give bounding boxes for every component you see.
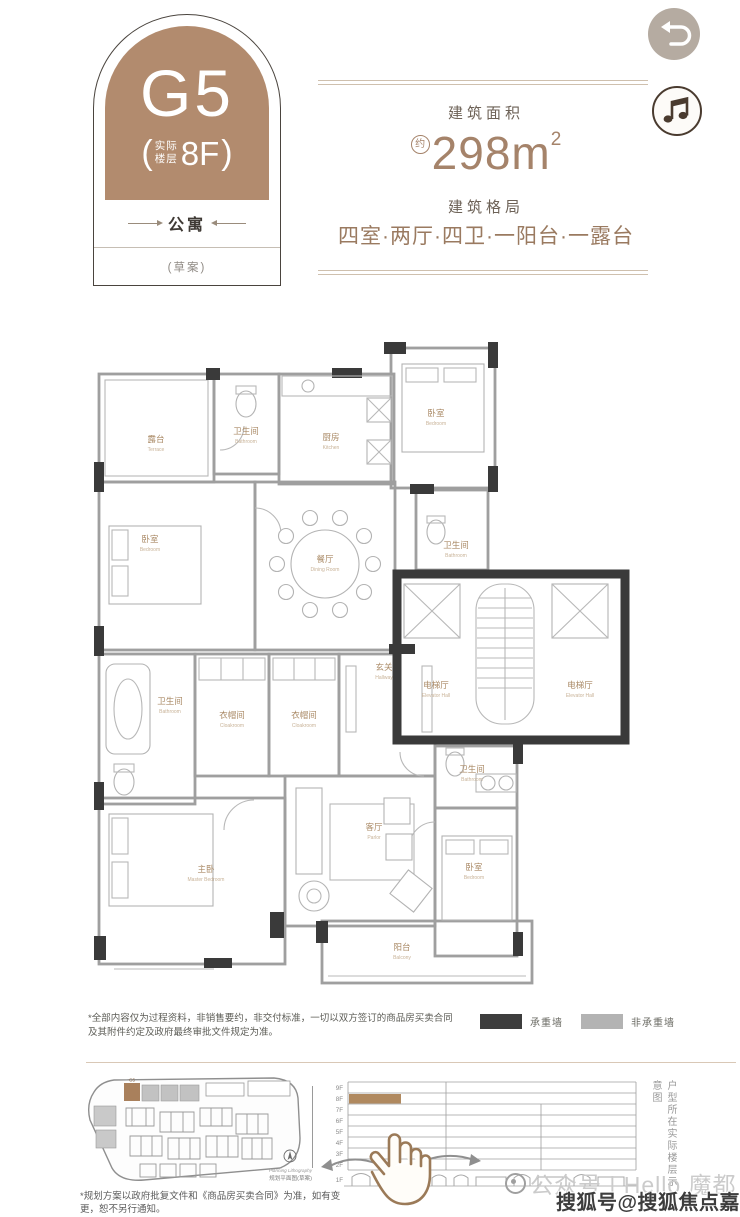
label-elevator-hall-right: 电梯厅 [567,680,593,690]
label-bath-left: 卫生间 [157,696,183,706]
svg-text:Elevator Hall: Elevator Hall [566,693,594,699]
sohu-watermark: 搜狐号@搜狐焦点嘉定站 [556,1186,740,1215]
svg-text:Parlor: Parlor [367,835,381,841]
unit-floor-row: ( 实际 楼层 8F ) [141,136,232,170]
label-elevator-hall-left: 电梯厅 [423,680,449,690]
floorplan-page: G5 ( 实际 楼层 8F ) 公寓 (草案) 建筑面积 约298m2 建筑格局… [0,0,740,1217]
draft-note: (草案) [94,259,280,275]
unit-type: 公寓 [168,211,206,235]
label-hallway: 玄关 [375,662,393,672]
floor-bracket-open: ( [141,136,152,170]
room-terrace [99,374,214,482]
unit-type-row: 公寓 [94,211,280,235]
bottom-divider [86,1062,736,1063]
svg-text:Dining Room: Dining Room [311,567,340,573]
room-balcony [322,921,532,983]
svg-text:Bathroom: Bathroom [235,439,257,445]
pointing-hand-icon [371,1135,430,1205]
swipe-gesture-hint [318,1128,508,1217]
label-cloak-b: 衣帽间 [291,710,317,720]
svg-text:Master Bedroom: Master Bedroom [188,877,225,883]
room-bath-top [214,374,279,474]
highlighted-building-g5 [124,1083,140,1101]
unit-name: G5 [140,60,234,126]
floorplan-drawing: 露台 Terrace 卫生间 Bathroom 厨房 Kitchen 卧室 Be… [84,336,662,1004]
non-load-bearing-label: 非承重墙 [631,1014,675,1029]
svg-text:Bedroom: Bedroom [464,875,484,881]
svg-text:Bathroom: Bathroom [159,709,181,715]
label-master: 主卧 [197,864,215,874]
disclaimer-text: *全部内容仅为过程资料，非销售要约，非交付标准，一切以双方签订的商品房买卖合同及… [88,1012,454,1041]
svg-text:6F: 6F [336,1118,343,1125]
load-bearing-label: 承重墙 [530,1014,563,1029]
bathtub [106,664,150,754]
svg-text:Bathroom: Bathroom [461,777,483,783]
site-plan-caption: 规划平面图(草案) [269,1174,312,1182]
compass-label-en: Planning Lithography [269,1168,313,1173]
swipe-arrow-right [469,1154,481,1166]
svg-text:Cloakroom: Cloakroom [220,723,244,729]
svg-text:Bathroom: Bathroom [445,553,467,559]
label-balcony: 阳台 [393,942,410,952]
label-bedroom-tr: 卧室 [427,408,445,418]
label-terrace: 露台 [147,434,164,444]
label-parlor: 客厅 [365,822,383,832]
label-bath-top: 卫生间 [233,426,259,436]
layout-label: 建筑格局 [318,196,654,217]
svg-text:Elevator Hall: Elevator Hall [422,693,450,699]
music-note-icon [654,88,699,133]
unit-badge-arch: G5 ( 实际 楼层 8F ) [105,26,269,200]
room-kitchen [279,374,394,484]
highlighted-floor-bar [349,1094,401,1104]
site-plan-footnote: *规划方案以政府批复文件和《商品房买卖合同》为准，如有变更，恕不另行通知。 [80,1190,342,1217]
svg-text:Kitchen: Kitchen [323,445,340,451]
svg-text:G5: G5 [129,1078,136,1083]
approx-circle: 约 [411,135,430,154]
svg-text:Hallway: Hallway [375,675,393,681]
dining-table [291,530,359,598]
badge-divider [94,247,280,248]
swipe-arrow-left [321,1159,333,1171]
header-bottom-rule [318,270,648,275]
label-bath-br: 卫生间 [459,764,485,774]
header-top-rule [318,80,648,85]
vertical-divider [312,1086,313,1168]
area-value: 约298m2 [318,126,654,180]
wall-legend: 承重墙 非承重墙 [480,1014,693,1029]
right-dash-arrow [216,223,246,224]
svg-text:Cloakroom: Cloakroom [292,723,316,729]
svg-text:Bedroom: Bedroom [426,421,446,427]
floor-note: 实际 楼层 [155,140,178,166]
svg-text:Terrace: Terrace [148,447,165,453]
master-bed [109,814,213,906]
sofa [296,788,322,874]
load-bearing-swatch [480,1014,522,1029]
label-bedroom-tl: 卧室 [141,534,159,544]
svg-text:Balcony: Balcony [393,955,411,961]
label-kitchen: 厨房 [322,432,339,442]
svg-text:7F: 7F [336,1107,343,1114]
label-bath-mid: 卫生间 [443,540,469,550]
label-dining: 餐厅 [316,554,334,564]
wechat-logo-icon [505,1173,526,1194]
svg-text:9F: 9F [336,1085,343,1092]
music-button[interactable] [652,86,702,136]
floor-value: 8F [181,137,220,170]
non-load-bearing-swatch [581,1014,623,1029]
floor-bracket-close: ) [221,136,232,170]
svg-text:8F: 8F [336,1096,343,1103]
back-button[interactable] [648,8,700,60]
unit-badge: G5 ( 实际 楼层 8F ) 公寓 (草案) [93,14,281,286]
site-plan-map: G5 Planning Lithography 规划平面图(草案) [84,1076,316,1188]
layout-value: 四室·两厅·四卫·一阳台·一露台 [318,220,654,250]
left-dash-arrow [128,223,158,224]
label-cloak-a: 衣帽间 [219,710,245,720]
svg-text:Bedroom: Bedroom [140,547,160,553]
return-arrow-icon [648,8,700,60]
area-label: 建筑面积 [318,102,654,123]
label-bedroom-br: 卧室 [465,862,483,872]
